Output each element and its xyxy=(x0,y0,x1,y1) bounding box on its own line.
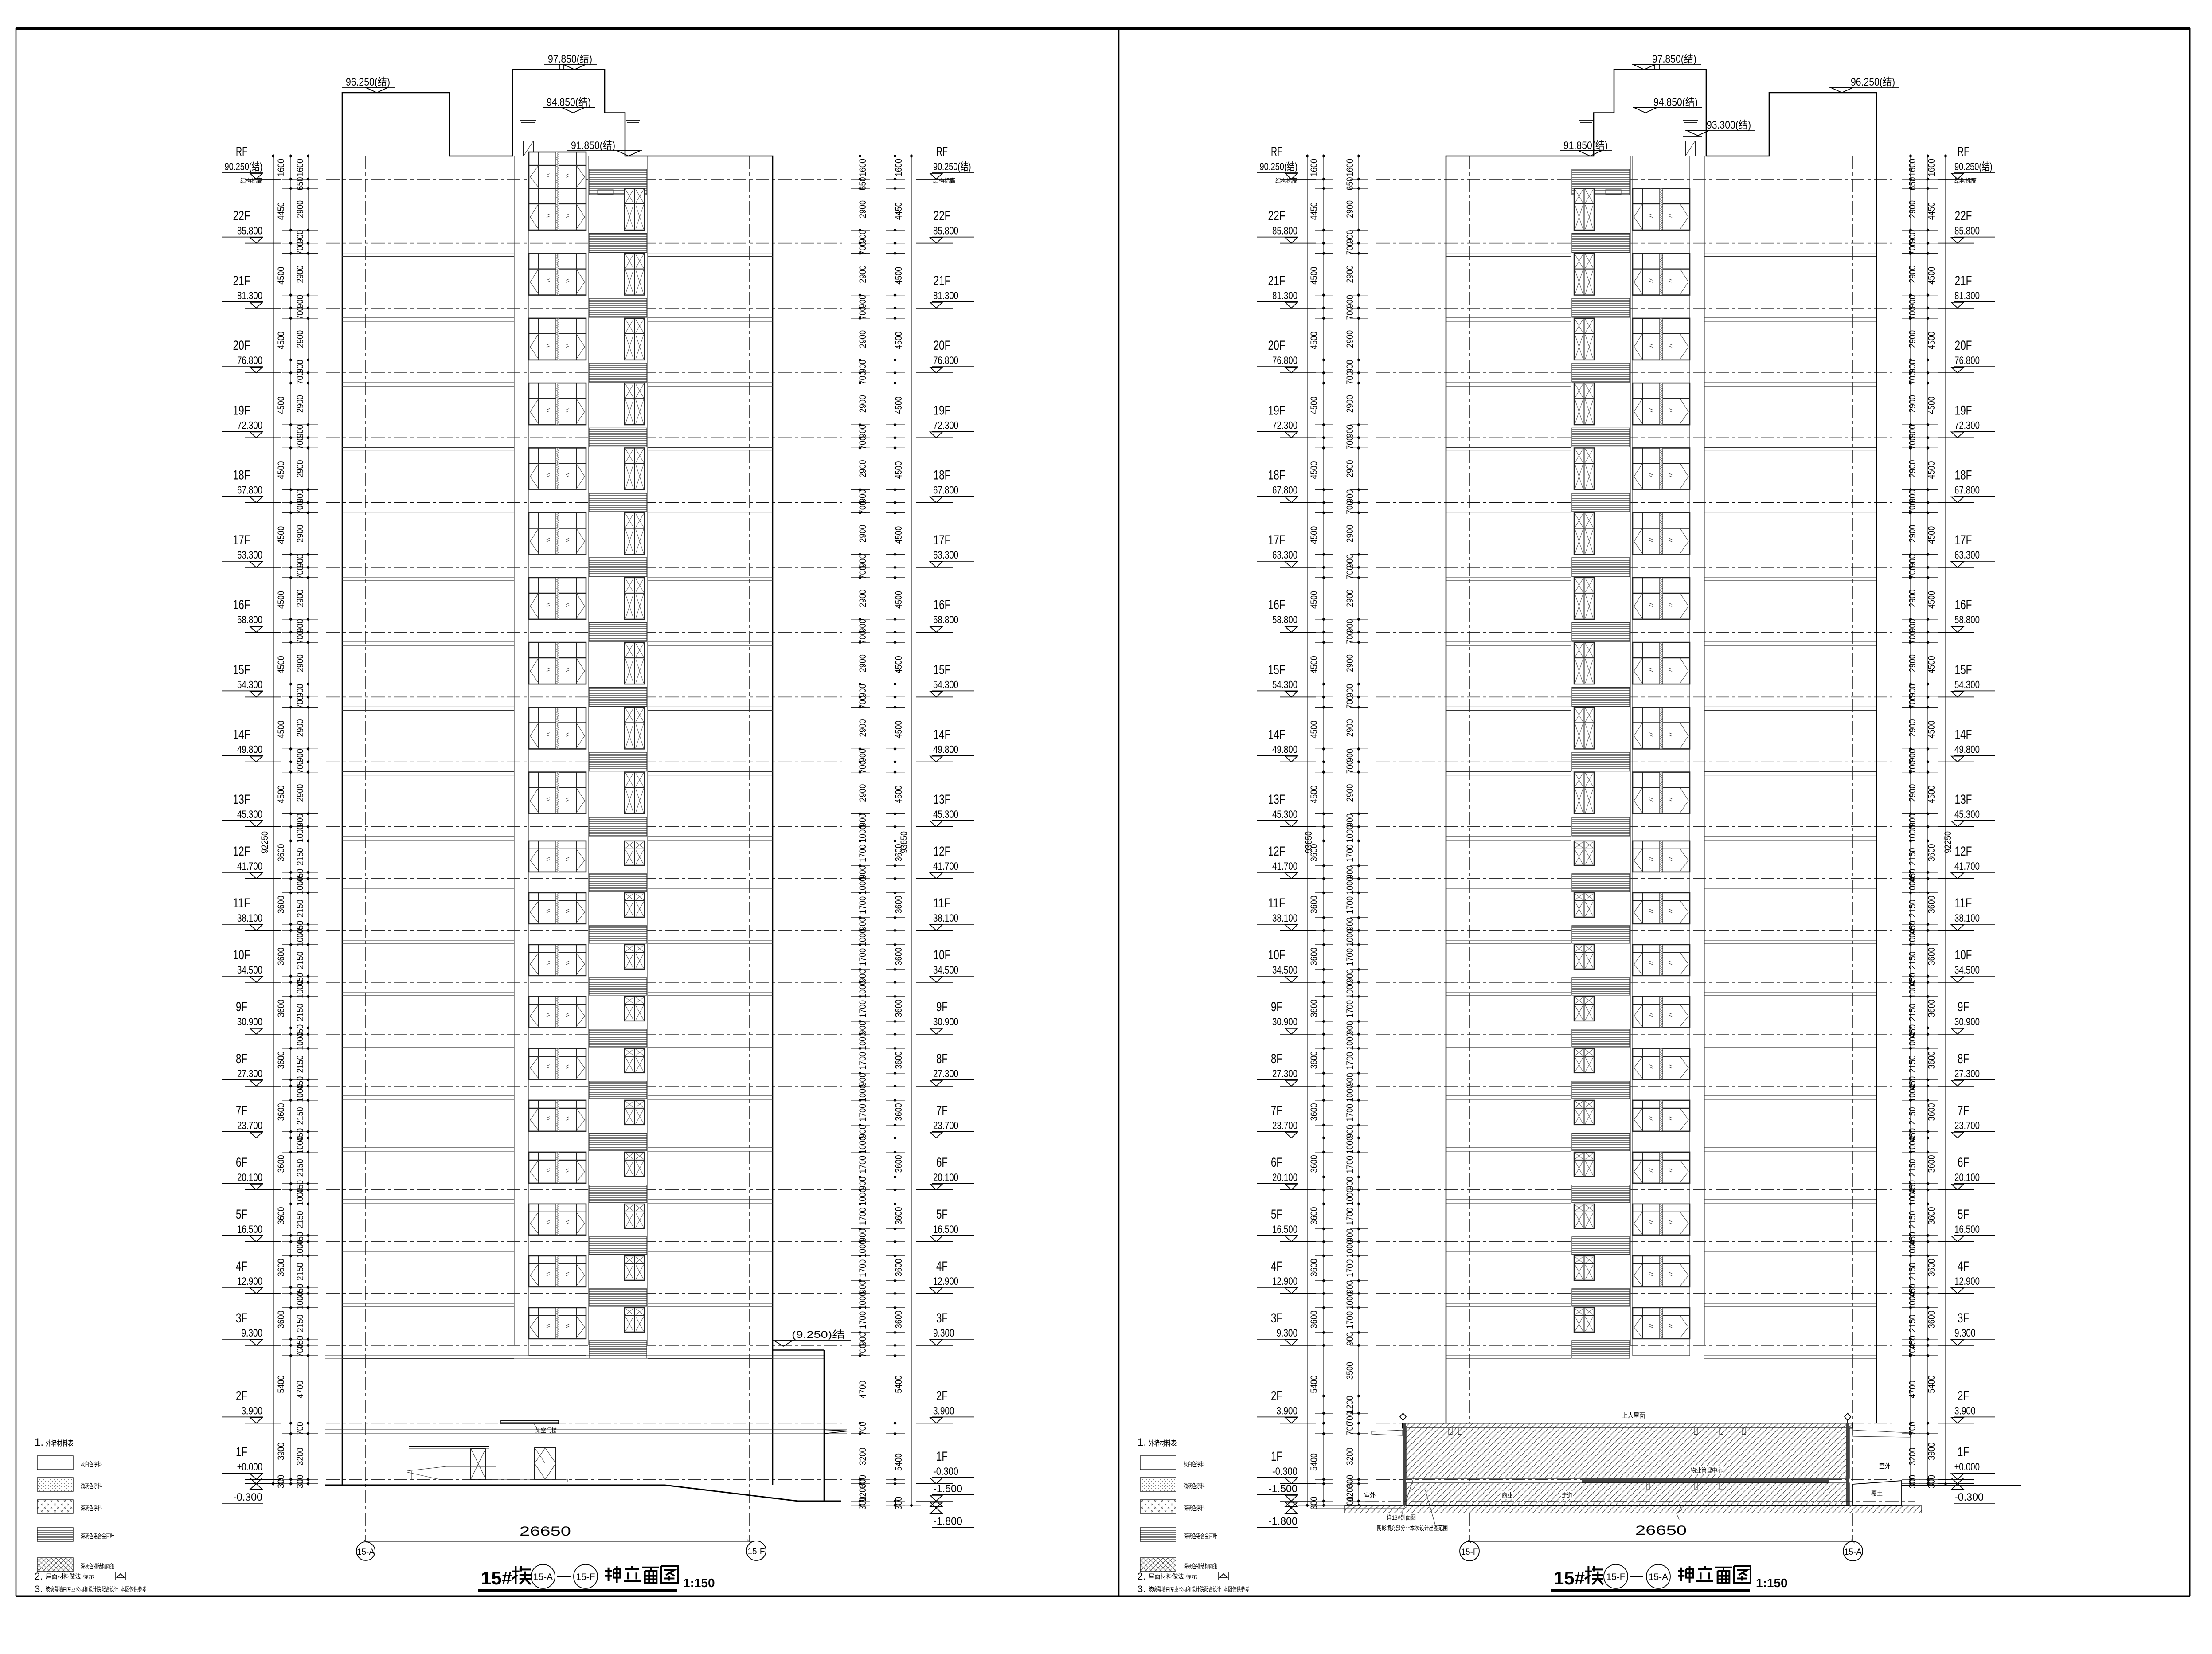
svg-text:20.100: 20.100 xyxy=(1954,1172,1980,1184)
svg-text:10F: 10F xyxy=(1955,948,1972,962)
svg-text:3200: 3200 xyxy=(1345,1448,1355,1466)
svg-text:67.800: 67.800 xyxy=(933,485,958,497)
svg-text:19F: 19F xyxy=(233,403,250,418)
svg-text:900: 900 xyxy=(1345,917,1355,931)
svg-text:2900: 2900 xyxy=(858,784,868,802)
svg-text:1000: 1000 xyxy=(1907,825,1918,843)
svg-text:5400: 5400 xyxy=(276,1376,286,1393)
svg-text:1000: 1000 xyxy=(858,1188,868,1206)
svg-text:900: 900 xyxy=(1345,969,1355,982)
svg-text:3600: 3600 xyxy=(1309,1103,1319,1121)
svg-text:23.700: 23.700 xyxy=(1272,1120,1297,1132)
svg-text:1000: 1000 xyxy=(295,1292,305,1310)
svg-text:4500: 4500 xyxy=(1927,786,1937,803)
svg-text:3600: 3600 xyxy=(276,1310,286,1328)
svg-text:覆土: 覆土 xyxy=(1871,1490,1883,1497)
svg-text:4500: 4500 xyxy=(1927,332,1937,349)
svg-text:12F: 12F xyxy=(233,844,250,859)
svg-text:900: 900 xyxy=(1907,749,1918,762)
svg-text:-0.300: -0.300 xyxy=(233,1491,262,1503)
svg-text:3600: 3600 xyxy=(276,1051,286,1069)
svg-text:17F: 17F xyxy=(233,533,250,547)
svg-text:76.800: 76.800 xyxy=(237,355,262,367)
svg-text:3.900: 3.900 xyxy=(1277,1405,1298,1417)
svg-text:63.300: 63.300 xyxy=(237,549,262,561)
svg-text:4500: 4500 xyxy=(894,721,904,739)
svg-text:12.900: 12.900 xyxy=(933,1275,958,1287)
svg-text:49.800: 49.800 xyxy=(1272,744,1297,756)
svg-text:650: 650 xyxy=(1345,177,1355,191)
svg-text:±0.000: ±0.000 xyxy=(237,1461,262,1473)
svg-text:5400: 5400 xyxy=(1309,1453,1319,1471)
svg-text:3F: 3F xyxy=(1958,1311,1969,1326)
svg-text:900: 900 xyxy=(295,425,305,438)
svg-text:900: 900 xyxy=(1907,360,1918,373)
svg-text:93650: 93650 xyxy=(899,831,909,853)
svg-text:16F: 16F xyxy=(233,598,250,612)
svg-text:-1.500: -1.500 xyxy=(933,1483,962,1495)
svg-text:3600: 3600 xyxy=(276,947,286,965)
svg-text:900: 900 xyxy=(1907,425,1918,438)
svg-text:900: 900 xyxy=(1345,865,1355,879)
svg-text:-0.300: -0.300 xyxy=(1272,1466,1297,1478)
svg-text:72.300: 72.300 xyxy=(933,419,958,431)
svg-text:34.500: 34.500 xyxy=(237,964,262,976)
svg-text:97.850(结): 97.850(结) xyxy=(548,53,592,65)
svg-text:结构标高: 结构标高 xyxy=(1275,177,1297,184)
svg-text:38.100: 38.100 xyxy=(1272,912,1297,924)
svg-text:19F: 19F xyxy=(934,403,951,418)
svg-text:30.900: 30.900 xyxy=(237,1016,262,1028)
svg-text:3600: 3600 xyxy=(894,1103,904,1121)
svg-text:38.100: 38.100 xyxy=(933,912,958,924)
svg-text:8F: 8F xyxy=(936,1052,948,1066)
svg-text:4500: 4500 xyxy=(894,332,904,349)
svg-text:85.800: 85.800 xyxy=(237,225,262,237)
svg-text:15F: 15F xyxy=(934,662,951,677)
svg-text:14F: 14F xyxy=(1955,727,1972,742)
svg-text:72.300: 72.300 xyxy=(1272,419,1297,431)
svg-text:4500: 4500 xyxy=(276,721,286,739)
svg-text:3600: 3600 xyxy=(276,1259,286,1276)
svg-text:63.300: 63.300 xyxy=(1954,549,1980,561)
svg-text:300: 300 xyxy=(894,1497,904,1510)
svg-text:结构标高: 结构标高 xyxy=(933,177,955,184)
svg-text:1000: 1000 xyxy=(295,1188,305,1206)
svg-text:3500: 3500 xyxy=(1345,1362,1355,1380)
svg-text:81.300: 81.300 xyxy=(237,290,262,302)
svg-text:300: 300 xyxy=(858,1497,868,1510)
svg-text:1700: 1700 xyxy=(1345,845,1355,862)
svg-text:2900: 2900 xyxy=(295,395,305,413)
svg-text:4500: 4500 xyxy=(1927,267,1937,285)
svg-text:97.850(结): 97.850(结) xyxy=(1652,53,1696,65)
svg-text:300: 300 xyxy=(295,1475,305,1488)
svg-text:700: 700 xyxy=(1907,501,1918,514)
svg-text:76.800: 76.800 xyxy=(1272,355,1297,367)
svg-text:700: 700 xyxy=(858,631,868,644)
svg-text:16.500: 16.500 xyxy=(237,1224,262,1236)
svg-text:4500: 4500 xyxy=(1927,461,1937,479)
svg-text:700: 700 xyxy=(1907,760,1918,774)
svg-text:67.800: 67.800 xyxy=(1954,485,1980,497)
svg-text:4F: 4F xyxy=(236,1259,247,1274)
svg-text:700: 700 xyxy=(1907,696,1918,709)
svg-text:3600: 3600 xyxy=(1927,895,1937,913)
svg-text:9.300: 9.300 xyxy=(242,1327,263,1339)
svg-text:2150: 2150 xyxy=(1907,951,1918,969)
svg-text:93.300(结): 93.300(结) xyxy=(1707,119,1751,131)
svg-text:9F: 9F xyxy=(236,1000,247,1014)
svg-text:1600: 1600 xyxy=(894,159,904,176)
svg-text:4500: 4500 xyxy=(276,332,286,349)
svg-text:63.300: 63.300 xyxy=(1272,549,1297,561)
svg-text:58.800: 58.800 xyxy=(1272,614,1297,626)
svg-text:900: 900 xyxy=(1907,230,1918,243)
svg-text:4500: 4500 xyxy=(276,656,286,673)
svg-text:300: 300 xyxy=(1309,1497,1319,1510)
svg-text:2900: 2900 xyxy=(1907,266,1918,283)
svg-text:20F: 20F xyxy=(233,338,250,353)
svg-text:1000: 1000 xyxy=(295,1084,305,1102)
svg-text:34.500: 34.500 xyxy=(1954,964,1980,976)
svg-text:92250: 92250 xyxy=(260,831,270,853)
svg-text:3600: 3600 xyxy=(1309,1051,1319,1069)
svg-text:3F: 3F xyxy=(236,1311,247,1326)
svg-text:12F: 12F xyxy=(1955,844,1972,859)
svg-text:650: 650 xyxy=(295,177,305,191)
svg-text:3200: 3200 xyxy=(1907,1448,1918,1466)
svg-text:2150: 2150 xyxy=(295,1211,305,1228)
svg-text:96.250(结): 96.250(结) xyxy=(1851,76,1895,88)
svg-text:2900: 2900 xyxy=(858,200,868,218)
svg-text:900: 900 xyxy=(858,1125,868,1138)
svg-text:900: 900 xyxy=(858,1280,868,1294)
svg-text:900: 900 xyxy=(1345,1021,1355,1034)
svg-text:1000: 1000 xyxy=(295,825,305,843)
svg-text:4450: 4450 xyxy=(276,202,286,220)
svg-text:900: 900 xyxy=(1907,554,1918,567)
svg-text:85.800: 85.800 xyxy=(933,225,958,237)
svg-text:1000: 1000 xyxy=(1907,1032,1918,1050)
svg-text:15-F: 15-F xyxy=(1461,1548,1478,1557)
svg-text:2900: 2900 xyxy=(295,654,305,672)
svg-text:1700: 1700 xyxy=(858,1311,868,1329)
svg-text:1.: 1. xyxy=(35,1436,43,1448)
svg-text:700: 700 xyxy=(1345,1422,1355,1435)
svg-text:4700: 4700 xyxy=(1907,1380,1918,1398)
svg-text:900: 900 xyxy=(858,1021,868,1034)
svg-text:2900: 2900 xyxy=(295,200,305,218)
svg-text:22F: 22F xyxy=(1268,209,1286,223)
svg-text:18F: 18F xyxy=(1268,468,1286,483)
svg-text:76.800: 76.800 xyxy=(933,355,958,367)
svg-text:12F: 12F xyxy=(1268,844,1286,859)
svg-text:700: 700 xyxy=(858,1422,868,1435)
svg-text:1000: 1000 xyxy=(1345,929,1355,946)
svg-text:-1.800: -1.800 xyxy=(1268,1516,1297,1528)
svg-text:700: 700 xyxy=(858,436,868,450)
svg-text:2900: 2900 xyxy=(295,460,305,477)
svg-text:2F: 2F xyxy=(1958,1388,1969,1403)
svg-text:16.500: 16.500 xyxy=(933,1224,958,1236)
svg-text:700: 700 xyxy=(1907,371,1918,385)
svg-text:15-F: 15-F xyxy=(747,1547,765,1556)
svg-text:3.900: 3.900 xyxy=(933,1405,954,1417)
svg-text:900: 900 xyxy=(858,749,868,762)
svg-text:3.900: 3.900 xyxy=(1954,1405,1976,1417)
svg-text:4500: 4500 xyxy=(1309,721,1319,739)
svg-text:49.800: 49.800 xyxy=(237,744,262,756)
svg-text:结构标高: 结构标高 xyxy=(1954,177,1977,184)
svg-text:1700: 1700 xyxy=(858,1208,868,1225)
svg-text:96.250(结): 96.250(结) xyxy=(346,76,390,88)
svg-text:2900: 2900 xyxy=(295,784,305,802)
svg-text:700: 700 xyxy=(1907,566,1918,579)
svg-text:41.700: 41.700 xyxy=(237,860,262,872)
svg-text:外墙材料表:: 外墙材料表: xyxy=(1149,1439,1178,1447)
svg-text:700: 700 xyxy=(295,631,305,644)
svg-text:1000: 1000 xyxy=(1907,981,1918,998)
svg-text:阴影填充部分非本次设计出图范围: 阴影填充部分非本次设计出图范围 xyxy=(1377,1525,1448,1532)
svg-text:700: 700 xyxy=(1345,631,1355,644)
svg-text:700: 700 xyxy=(858,760,868,774)
svg-text:1:150: 1:150 xyxy=(1756,1576,1788,1590)
svg-text:91.850(结): 91.850(结) xyxy=(1563,140,1608,152)
svg-text:900: 900 xyxy=(1907,295,1918,308)
svg-text:5400: 5400 xyxy=(1309,1376,1319,1393)
svg-text:22F: 22F xyxy=(233,209,250,223)
svg-text:12F: 12F xyxy=(934,844,951,859)
svg-text:3600: 3600 xyxy=(894,1207,904,1224)
svg-text:30.900: 30.900 xyxy=(1272,1016,1297,1028)
svg-text:9F: 9F xyxy=(1958,1000,1969,1014)
svg-text:900: 900 xyxy=(1345,1280,1355,1294)
svg-text:18F: 18F xyxy=(934,468,951,483)
svg-text:4500: 4500 xyxy=(276,526,286,544)
svg-text:1000: 1000 xyxy=(858,877,868,895)
svg-text:700: 700 xyxy=(1907,1344,1918,1357)
svg-text:700: 700 xyxy=(295,242,305,255)
svg-text:900: 900 xyxy=(295,230,305,243)
svg-text:900: 900 xyxy=(295,813,305,827)
svg-text:17F: 17F xyxy=(1268,533,1286,547)
svg-text:14F: 14F xyxy=(934,727,951,742)
svg-text:22F: 22F xyxy=(934,209,951,223)
svg-text:4F: 4F xyxy=(1958,1259,1969,1274)
svg-text:1200: 1200 xyxy=(1345,1396,1355,1414)
svg-text:900: 900 xyxy=(295,295,305,308)
svg-text:室外: 室外 xyxy=(1879,1462,1891,1470)
svg-text:2900: 2900 xyxy=(1907,460,1918,477)
svg-text:15F: 15F xyxy=(1955,662,1972,677)
svg-text:1700: 1700 xyxy=(858,845,868,862)
svg-text:13F: 13F xyxy=(934,792,951,807)
svg-text:1000: 1000 xyxy=(858,1136,868,1154)
svg-text:900: 900 xyxy=(1345,1073,1355,1086)
svg-text:1700: 1700 xyxy=(858,948,868,966)
svg-text:17F: 17F xyxy=(934,533,951,547)
svg-text:4500: 4500 xyxy=(1309,591,1319,609)
svg-text:4500: 4500 xyxy=(894,526,904,544)
svg-text:11F: 11F xyxy=(233,896,250,911)
svg-text:38.100: 38.100 xyxy=(237,912,262,924)
svg-text:700: 700 xyxy=(858,371,868,385)
svg-text:85.800: 85.800 xyxy=(1272,225,1297,237)
svg-text:2150: 2150 xyxy=(295,1055,305,1073)
svg-text:6F: 6F xyxy=(936,1155,948,1170)
svg-text:900: 900 xyxy=(1345,619,1355,633)
svg-text:900: 900 xyxy=(1345,1228,1355,1242)
svg-text:700: 700 xyxy=(295,501,305,514)
svg-text:27.300: 27.300 xyxy=(237,1068,262,1080)
svg-text:-1.500: -1.500 xyxy=(1268,1483,1297,1495)
svg-text:2900: 2900 xyxy=(1907,395,1918,413)
svg-text:4500: 4500 xyxy=(1309,526,1319,544)
svg-text:2900: 2900 xyxy=(295,330,305,348)
svg-text:1F: 1F xyxy=(1958,1445,1969,1459)
svg-text:深灰色涂料: 深灰色涂料 xyxy=(1184,1505,1205,1512)
svg-text:2900: 2900 xyxy=(858,590,868,607)
svg-text:3600: 3600 xyxy=(894,999,904,1017)
svg-text:3200: 3200 xyxy=(858,1448,868,1466)
svg-text:4500: 4500 xyxy=(1309,786,1319,803)
svg-text:5F: 5F xyxy=(1271,1207,1282,1222)
svg-text:玻璃幕墙由专业公司和设计院配合设计, 本图仅供参考.: 玻璃幕墙由专业公司和设计院配合设计, 本图仅供参考. xyxy=(46,1586,148,1593)
svg-text:700: 700 xyxy=(1345,306,1355,320)
svg-text:90.250(结): 90.250(结) xyxy=(1260,161,1298,173)
svg-text:3900: 3900 xyxy=(1927,1443,1937,1460)
svg-text:1000: 1000 xyxy=(858,1292,868,1310)
svg-text:2150: 2150 xyxy=(1907,1211,1918,1228)
svg-text:900: 900 xyxy=(1345,489,1355,503)
svg-text:700: 700 xyxy=(1345,501,1355,514)
svg-text:1000: 1000 xyxy=(858,981,868,998)
svg-text:3600: 3600 xyxy=(276,1207,286,1224)
svg-text:2900: 2900 xyxy=(295,525,305,543)
svg-text:900: 900 xyxy=(858,360,868,373)
svg-text:54.300: 54.300 xyxy=(1954,679,1980,691)
svg-text:4500: 4500 xyxy=(1927,396,1937,414)
svg-text:2150: 2150 xyxy=(1907,848,1918,865)
svg-text:深灰色涂料: 深灰色涂料 xyxy=(81,1505,102,1512)
svg-text:5400: 5400 xyxy=(1927,1376,1937,1393)
svg-text:10F: 10F xyxy=(233,948,250,962)
svg-text:700: 700 xyxy=(295,306,305,320)
svg-text:14F: 14F xyxy=(1268,727,1286,742)
svg-text:2150: 2150 xyxy=(1907,1263,1918,1280)
svg-text:8F: 8F xyxy=(1958,1052,1969,1066)
svg-text:-0.300: -0.300 xyxy=(1954,1491,1984,1503)
svg-text:4500: 4500 xyxy=(894,267,904,285)
svg-text:15-A: 15-A xyxy=(1844,1548,1862,1557)
svg-text:12.900: 12.900 xyxy=(237,1275,262,1287)
svg-text:2.: 2. xyxy=(1137,1571,1145,1582)
svg-text:13F: 13F xyxy=(1955,792,1972,807)
svg-text:2900: 2900 xyxy=(1345,784,1355,802)
svg-text:45.300: 45.300 xyxy=(1272,809,1297,821)
svg-text:700: 700 xyxy=(295,566,305,579)
svg-text:1000: 1000 xyxy=(1907,929,1918,946)
svg-text:3600: 3600 xyxy=(1927,999,1937,1017)
svg-text:1.: 1. xyxy=(1137,1436,1146,1448)
svg-text:16F: 16F xyxy=(1268,598,1286,612)
svg-text:4450: 4450 xyxy=(894,202,904,220)
svg-text:3600: 3600 xyxy=(1927,1051,1937,1069)
svg-text:3600: 3600 xyxy=(1927,1259,1937,1276)
svg-text:灰白色涂料: 灰白色涂料 xyxy=(1184,1461,1205,1468)
svg-text:900: 900 xyxy=(295,619,305,633)
svg-text:3600: 3600 xyxy=(1927,1155,1937,1173)
svg-text:20.100: 20.100 xyxy=(237,1172,262,1184)
svg-text:27.300: 27.300 xyxy=(1954,1068,1980,1080)
svg-text:1000: 1000 xyxy=(1345,1292,1355,1310)
svg-text:700: 700 xyxy=(858,566,868,579)
svg-text:900: 900 xyxy=(858,230,868,243)
svg-text:3F: 3F xyxy=(1271,1311,1282,1326)
svg-text:1700: 1700 xyxy=(1345,1311,1355,1329)
svg-text:4450: 4450 xyxy=(1309,202,1319,220)
svg-text:4500: 4500 xyxy=(894,656,904,673)
svg-text:RF: RF xyxy=(236,145,247,159)
svg-text:4500: 4500 xyxy=(894,461,904,479)
svg-text:2150: 2150 xyxy=(1907,1107,1918,1125)
svg-text:4500: 4500 xyxy=(1927,721,1937,739)
svg-text:21F: 21F xyxy=(233,274,250,288)
svg-text:5F: 5F xyxy=(936,1207,948,1222)
svg-text:15#: 15# xyxy=(481,1568,512,1588)
svg-text:1000: 1000 xyxy=(858,1240,868,1258)
svg-text:3600: 3600 xyxy=(1927,844,1937,861)
svg-text:15-A: 15-A xyxy=(1649,1572,1668,1582)
svg-text:2150: 2150 xyxy=(1907,899,1918,917)
svg-text:室外: 室外 xyxy=(1364,1492,1376,1499)
svg-text:11F: 11F xyxy=(1955,896,1972,911)
svg-text:2900: 2900 xyxy=(858,654,868,672)
svg-text:3.: 3. xyxy=(1137,1584,1145,1595)
svg-text:21F: 21F xyxy=(1955,274,1972,288)
svg-text:RF: RF xyxy=(1271,145,1282,159)
svg-text:1F: 1F xyxy=(1271,1449,1282,1464)
svg-text:27.300: 27.300 xyxy=(1272,1068,1297,1080)
svg-text:2900: 2900 xyxy=(858,525,868,543)
svg-text:16F: 16F xyxy=(934,598,951,612)
svg-text:2900: 2900 xyxy=(1345,200,1355,218)
svg-text:20.100: 20.100 xyxy=(933,1172,958,1184)
svg-text:2150: 2150 xyxy=(295,899,305,917)
svg-text:2900: 2900 xyxy=(858,719,868,737)
svg-text:物业管理中心: 物业管理中心 xyxy=(1691,1467,1723,1474)
svg-text:1600: 1600 xyxy=(1907,159,1918,176)
svg-text:1000: 1000 xyxy=(858,1032,868,1050)
svg-text:900: 900 xyxy=(858,1073,868,1086)
svg-text:1F: 1F xyxy=(236,1445,247,1459)
svg-text:1700: 1700 xyxy=(1345,896,1355,914)
svg-text:67.800: 67.800 xyxy=(237,485,262,497)
svg-text:1700: 1700 xyxy=(858,1104,868,1122)
svg-text:2150: 2150 xyxy=(295,848,305,865)
svg-text:900: 900 xyxy=(858,1332,868,1345)
svg-text:700: 700 xyxy=(1345,696,1355,709)
svg-text:34.500: 34.500 xyxy=(933,964,958,976)
svg-text:900: 900 xyxy=(1345,749,1355,762)
svg-text:2F: 2F xyxy=(936,1388,948,1403)
svg-text:1000: 1000 xyxy=(295,877,305,895)
svg-text:1600: 1600 xyxy=(1309,159,1319,176)
svg-text:3600: 3600 xyxy=(1309,1207,1319,1224)
svg-text:1700: 1700 xyxy=(1345,1259,1355,1277)
svg-text:2900: 2900 xyxy=(1907,330,1918,348)
